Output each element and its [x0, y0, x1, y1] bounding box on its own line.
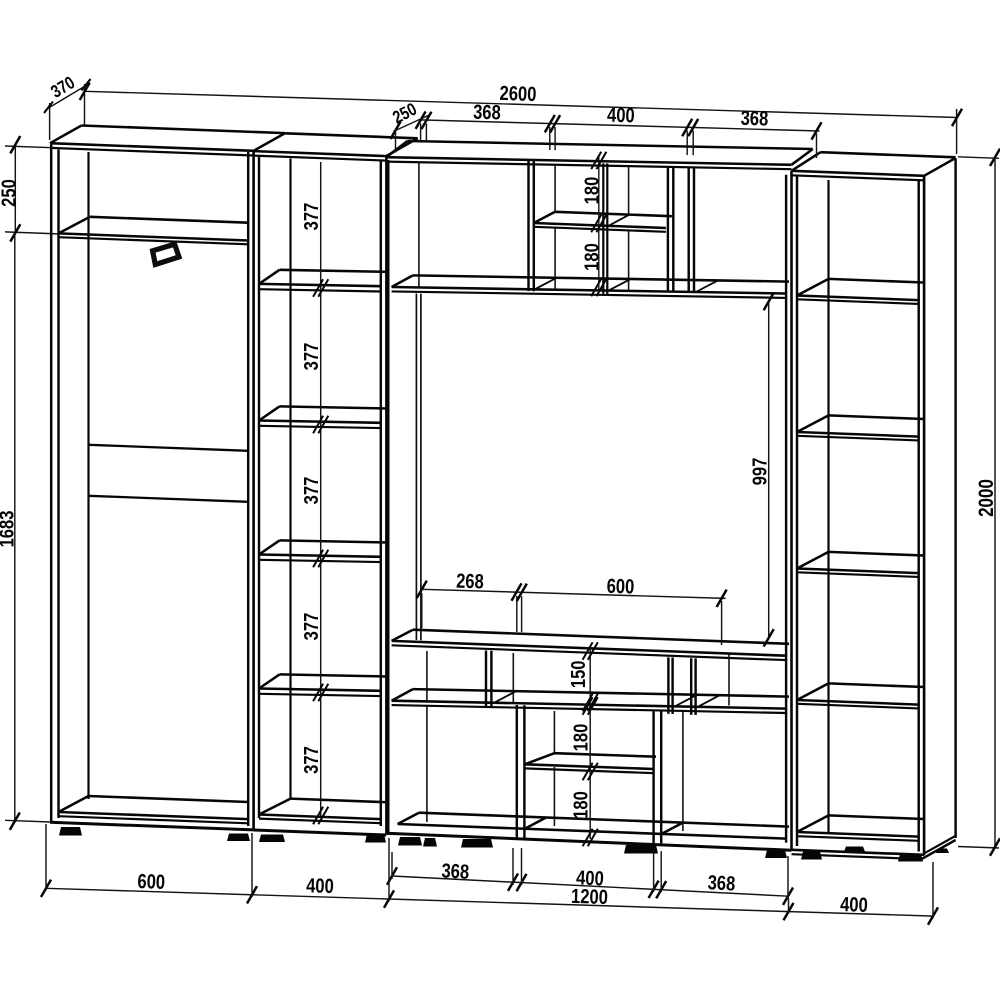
svg-text:180: 180: [569, 724, 592, 752]
svg-text:150: 150: [566, 660, 589, 688]
svg-text:377: 377: [299, 613, 322, 641]
svg-text:368: 368: [707, 870, 736, 894]
svg-text:268: 268: [456, 569, 484, 593]
svg-text:2600: 2600: [499, 81, 537, 105]
svg-text:377: 377: [299, 343, 322, 371]
svg-text:600: 600: [137, 869, 165, 893]
svg-text:368: 368: [740, 106, 768, 130]
svg-text:400: 400: [607, 103, 635, 127]
svg-text:368: 368: [473, 100, 501, 124]
svg-text:377: 377: [299, 203, 322, 231]
svg-text:180: 180: [580, 177, 603, 205]
svg-text:180: 180: [580, 243, 603, 271]
svg-text:997: 997: [748, 458, 771, 486]
svg-text:377: 377: [299, 746, 322, 774]
svg-text:1200: 1200: [571, 884, 609, 908]
svg-text:400: 400: [306, 874, 334, 898]
svg-text:250: 250: [0, 179, 20, 207]
svg-text:2000: 2000: [975, 479, 998, 517]
svg-text:368: 368: [441, 859, 470, 883]
svg-text:600: 600: [606, 574, 634, 598]
svg-text:400: 400: [840, 892, 868, 916]
svg-text:377: 377: [299, 477, 322, 505]
svg-text:180: 180: [569, 791, 592, 819]
svg-text:1683: 1683: [0, 511, 18, 548]
